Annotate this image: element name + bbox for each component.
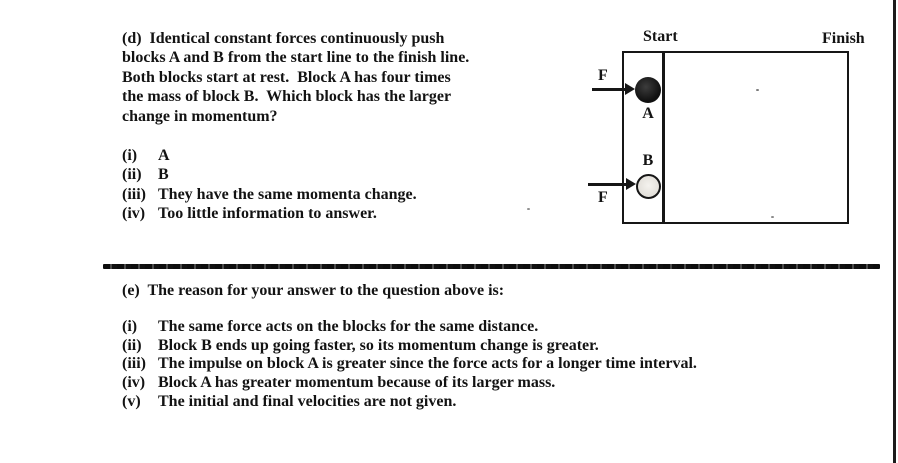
question-d-line: Both blocks start at rest. Block A has f… [122,68,469,87]
option-numeral: (ii) [122,337,158,356]
force-f-label-a: F [598,68,608,84]
option-text: Block B ends up going faster, so its mom… [158,337,599,356]
question-d-line: change in momentum? [122,107,469,126]
option-numeral: (iii) [122,355,158,374]
option-text: Block A has greater momentum because of … [158,374,555,393]
option-text: They have the same momenta change. [158,185,417,204]
question-d-line: blocks A and B from the start line to th… [122,48,469,67]
blocks-track-diagram: Start Finish F A B F [580,20,892,232]
option-d-iii: (iii) They have the same momenta change. [122,185,417,204]
force-arrow-a [592,88,627,91]
question-d-text: (d) Identical constant forces continuous… [122,29,469,126]
option-e-iii: (iii) The impulse on block A is greater … [122,355,697,374]
option-d-iv: (iv) Too little information to answer. [122,204,417,223]
force-arrow-b [588,183,628,186]
scan-speck [756,89,759,91]
option-text: The initial and final velocities are not… [158,393,456,412]
option-numeral: (i) [122,146,158,165]
start-line [662,51,665,224]
option-e-iv: (iv) Block A has greater momentum becaus… [122,374,697,393]
force-arrowhead-b-icon [626,178,636,190]
option-e-v: (v) The initial and final velocities are… [122,393,697,412]
option-d-ii: (ii) B [122,165,417,184]
option-numeral: (i) [122,318,158,337]
force-arrowhead-a-icon [625,83,635,95]
option-text: Too little information to answer. [158,204,377,223]
force-f-label-b: F [598,190,608,206]
question-e-text: (e) The reason for your answer to the qu… [122,281,504,300]
start-label: Start [643,29,678,45]
scan-speck [527,208,530,210]
option-numeral: (iv) [122,374,158,393]
finish-label: Finish [822,31,865,47]
option-e-ii: (ii) Block B ends up going faster, so it… [122,337,697,356]
scan-speck [771,216,774,218]
block-a-label: A [640,106,656,122]
option-numeral: (iv) [122,204,158,223]
option-e-i: (i) The same force acts on the blocks fo… [122,318,697,337]
option-numeral: (ii) [122,165,158,184]
question-e-options: (i) The same force acts on the blocks fo… [122,318,697,412]
page-scan-edge-line [893,0,896,463]
option-text: B [158,165,169,184]
question-d-line: the mass of block B. Which block has the… [122,87,469,106]
option-d-i: (i) A [122,146,417,165]
scanned-question-page: (d) Identical constant forces continuous… [0,0,898,463]
option-text: The same force acts on the blocks for th… [158,318,538,337]
question-d-line: (d) Identical constant forces continuous… [122,29,469,48]
track-box [622,51,849,224]
question-d-options: (i) A (ii) B (iii) They have the same mo… [122,146,417,224]
block-b-label: B [640,153,656,169]
section-divider-rule [103,264,880,269]
block-a-circle [635,77,661,103]
option-numeral: (iii) [122,185,158,204]
option-text: A [158,146,170,165]
option-text: The impulse on block A is greater since … [158,355,697,374]
block-b-circle [636,174,661,199]
option-numeral: (v) [122,393,158,412]
